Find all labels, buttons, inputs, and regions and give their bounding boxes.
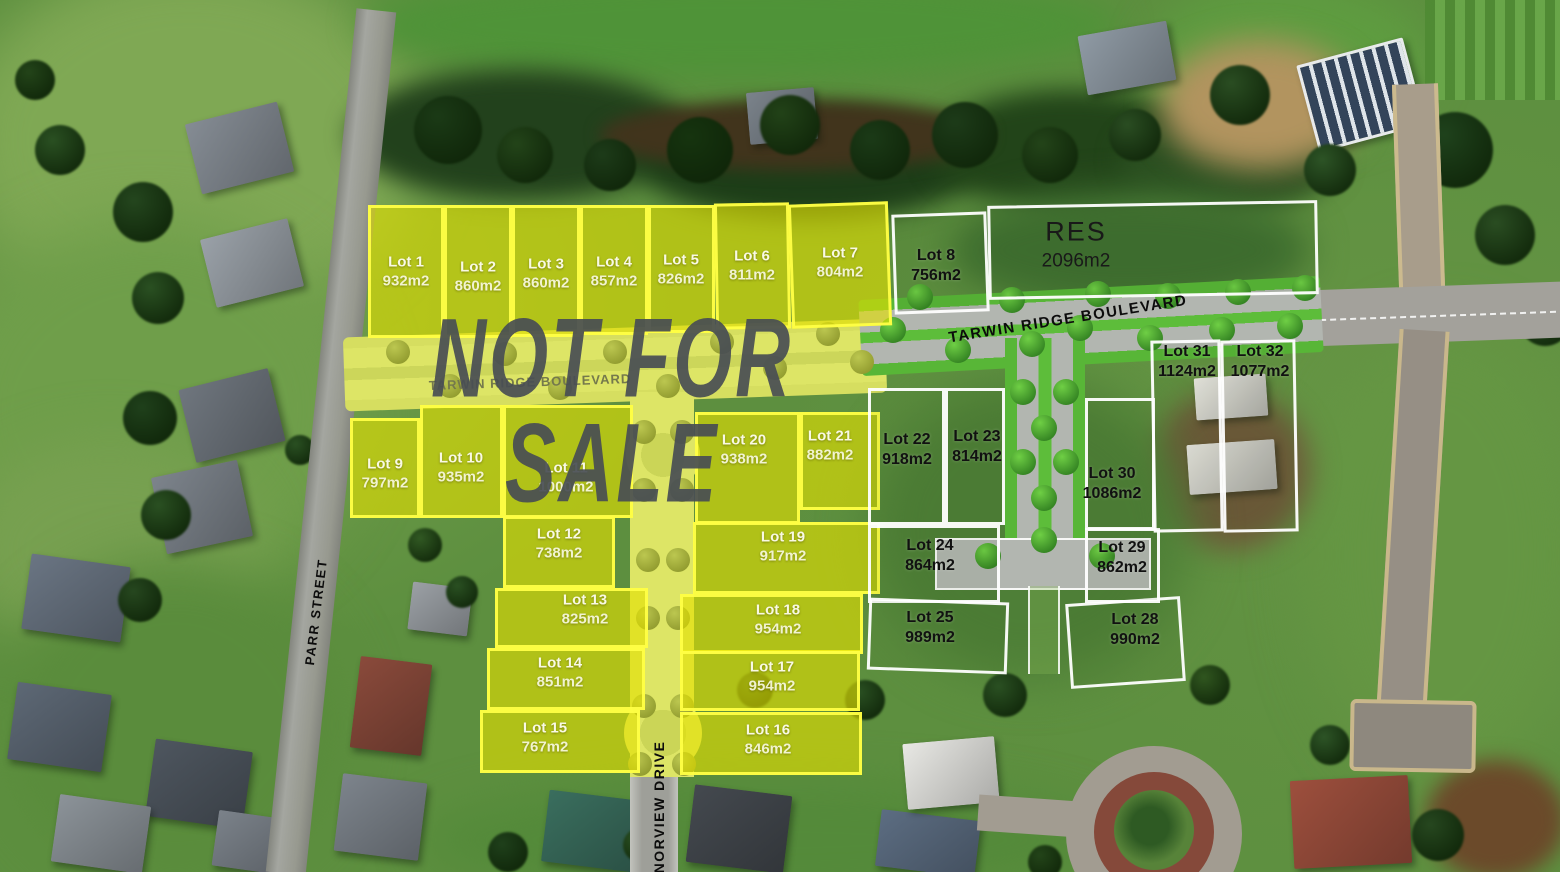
lot-10-label: Lot 10935m2 (438, 449, 485, 487)
lot-30-label: Lot 301086m2 (1083, 464, 1142, 504)
lot-1-label: Lot 1932m2 (383, 253, 430, 291)
lot-15-label: Lot 15767m2 (522, 719, 569, 757)
lot-31-label: Lot 311124m2 (1158, 342, 1216, 382)
street-tree (1010, 379, 1036, 405)
lot-2-label: Lot 2860m2 (455, 258, 502, 296)
lot-32-label: Lot 321077m2 (1231, 342, 1290, 382)
aerial-subdivision-map: Lot 1932m2Lot 2860m2Lot 3860m2Lot 4857m2… (0, 0, 1560, 872)
lot-25-label: Lot 25989m2 (905, 608, 955, 648)
street-tree (1053, 449, 1079, 475)
lot-7-label: Lot 7804m2 (817, 244, 864, 282)
street-tree (1031, 415, 1057, 441)
street-tree (1019, 331, 1045, 357)
lot-29-label: Lot 29862m2 (1097, 538, 1147, 578)
lot-3-label: Lot 3860m2 (523, 255, 570, 293)
street-tree (1010, 449, 1036, 475)
lot-18-label: Lot 18954m2 (755, 601, 802, 639)
street-tree (1031, 527, 1057, 553)
lot-9-label: Lot 9797m2 (362, 455, 409, 493)
street-tree (1053, 379, 1079, 405)
reserve-parcel (987, 200, 1319, 300)
lot-21-label: Lot 21882m2 (807, 427, 854, 465)
norview-drive-label: NORVIEW DRIVE (651, 741, 667, 872)
street-tree-highlighted (850, 350, 874, 374)
lot-16-label: Lot 16846m2 (745, 721, 792, 759)
not-for-sale-watermark-line2: SALE (505, 399, 719, 528)
subdivision-overlay: Lot 1932m2Lot 2860m2Lot 3860m2Lot 4857m2… (0, 0, 1560, 872)
lot-24-label: Lot 24864m2 (905, 536, 955, 576)
lot-28-label: Lot 28990m2 (1110, 610, 1160, 650)
lot-20-label: Lot 20938m2 (721, 431, 768, 469)
street-tree-highlighted (636, 548, 660, 572)
street-tree (1277, 313, 1303, 339)
lot-19-label: Lot 19917m2 (760, 528, 807, 566)
street-tree-highlighted (386, 340, 410, 364)
reserve-label: RES2096m2 (1042, 215, 1111, 273)
parr-street-label: PARR STREET (302, 558, 330, 666)
lot-5-label: Lot 5826m2 (658, 251, 705, 289)
lot-17-label: Lot 17954m2 (749, 658, 796, 696)
lot-8-label: Lot 8756m2 (911, 246, 961, 286)
street-tree-highlighted (666, 548, 690, 572)
lot-6-label: Lot 6811m2 (729, 247, 775, 285)
street-tree (1031, 485, 1057, 511)
lot-14-label: Lot 14851m2 (537, 654, 584, 692)
lot-12-label: Lot 12738m2 (536, 525, 583, 563)
lot-4-label: Lot 4857m2 (591, 253, 638, 291)
lot-13-label: Lot 13825m2 (562, 591, 609, 629)
lot-23-label: Lot 23814m2 (952, 427, 1002, 467)
lot-22-label: Lot 22918m2 (882, 430, 932, 470)
